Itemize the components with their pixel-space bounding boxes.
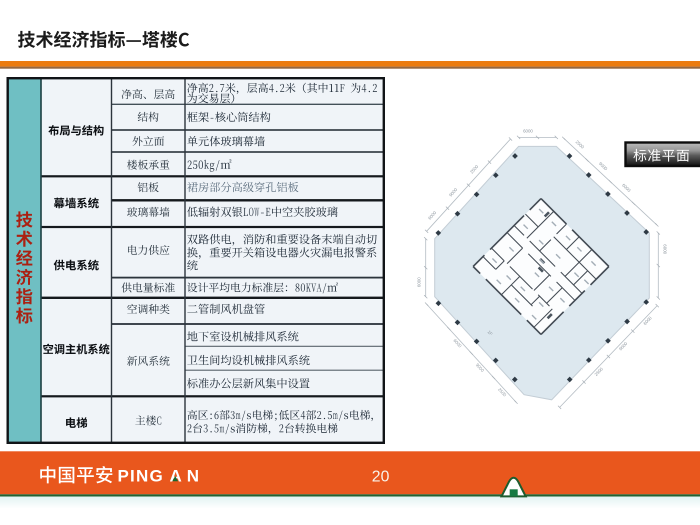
svg-text:6000: 6000 [662, 244, 667, 254]
svg-text:AN: AN [170, 467, 205, 486]
svg-text:6000: 6000 [523, 128, 533, 133]
svg-text:PING: PING [118, 467, 164, 486]
svg-text:6000: 6000 [417, 277, 422, 287]
svg-text:20: 20 [372, 469, 390, 486]
